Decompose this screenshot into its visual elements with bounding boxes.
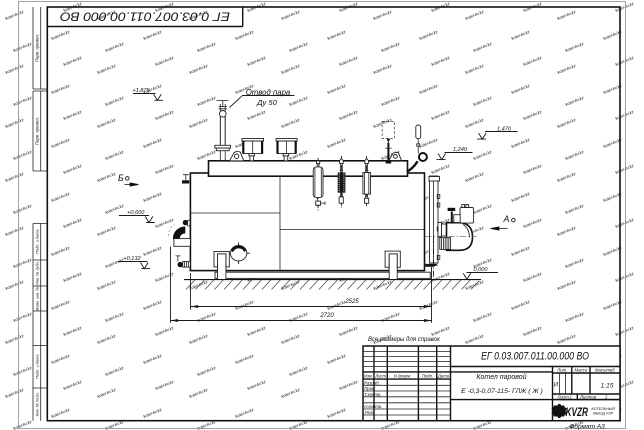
svg-text:Масштаб: Масштаб (595, 367, 615, 372)
svg-text:Листов: Листов (579, 395, 597, 400)
svg-text:Взам. инв. №: Взам. инв. № (35, 286, 40, 311)
svg-text:ЕГ 0.03.007.011.00.000 ВО: ЕГ 0.03.007.011.00.000 ВО (59, 9, 230, 23)
svg-text:+0,132: +0,132 (123, 256, 141, 262)
svg-text:2525: 2525 (344, 299, 359, 305)
svg-text:Б: Б (118, 173, 124, 183)
svg-text:КОТЕЛЬНЫЙ: КОТЕЛЬНЫЙ (592, 407, 616, 411)
svg-text:Инв. № подл.: Инв. № подл. (35, 392, 40, 416)
svg-text:N докум.: N докум. (394, 374, 411, 379)
svg-text:Разраб.: Разраб. (364, 380, 380, 385)
svg-text:А: А (503, 214, 510, 224)
svg-text:Подп. и дата: Подп. и дата (35, 354, 40, 379)
svg-text:ЗАВОД РЗР: ЗАВОД РЗР (593, 412, 614, 416)
svg-text:Изм.: Изм. (364, 374, 373, 379)
svg-text:Подп. и дата: Подп. и дата (35, 229, 40, 254)
svg-text:Утв.: Утв. (364, 410, 374, 415)
svg-text:Котел паровой: Котел паровой (476, 373, 526, 381)
svg-text:2720: 2720 (319, 313, 334, 319)
svg-text:Т.контр.: Т.контр. (364, 392, 381, 397)
svg-text:2: 2 (604, 395, 608, 400)
svg-text:Формат А3: Формат А3 (569, 424, 605, 430)
svg-text:Подп.: Подп. (422, 374, 433, 379)
svg-text:ЕГ 0.03.007.011.00.000 ВО: ЕГ 0.03.007.011.00.000 ВО (481, 351, 589, 363)
svg-text:Пров.: Пров. (364, 386, 375, 391)
svg-text:Все размеры для справок: Все размеры для справок (368, 337, 441, 343)
svg-text:Лист: Лист (557, 395, 570, 400)
svg-text:Ду 50: Ду 50 (256, 98, 278, 107)
svg-text:Перв. примен.: Перв. примен. (35, 117, 40, 145)
svg-text:Е -0,3-0,07-115- ГЛЖ ( Ж ): Е -0,3-0,07-115- ГЛЖ ( Ж ) (461, 388, 543, 395)
svg-text:Перв. примен.: Перв. примен. (35, 34, 40, 62)
svg-text:Н.контр.: Н.контр. (364, 404, 382, 409)
svg-text:Лист: Лист (374, 374, 386, 379)
svg-text:Дата: Дата (437, 374, 450, 379)
svg-text:Лит.: Лит. (556, 367, 567, 372)
svg-text:Инв. № дубл.: Инв. № дубл. (35, 261, 40, 285)
svg-text:Масса: Масса (574, 367, 587, 372)
svg-text:И: И (554, 383, 559, 389)
svg-text:KVZR: KVZR (566, 407, 589, 419)
svg-text:1:15: 1:15 (601, 383, 614, 390)
